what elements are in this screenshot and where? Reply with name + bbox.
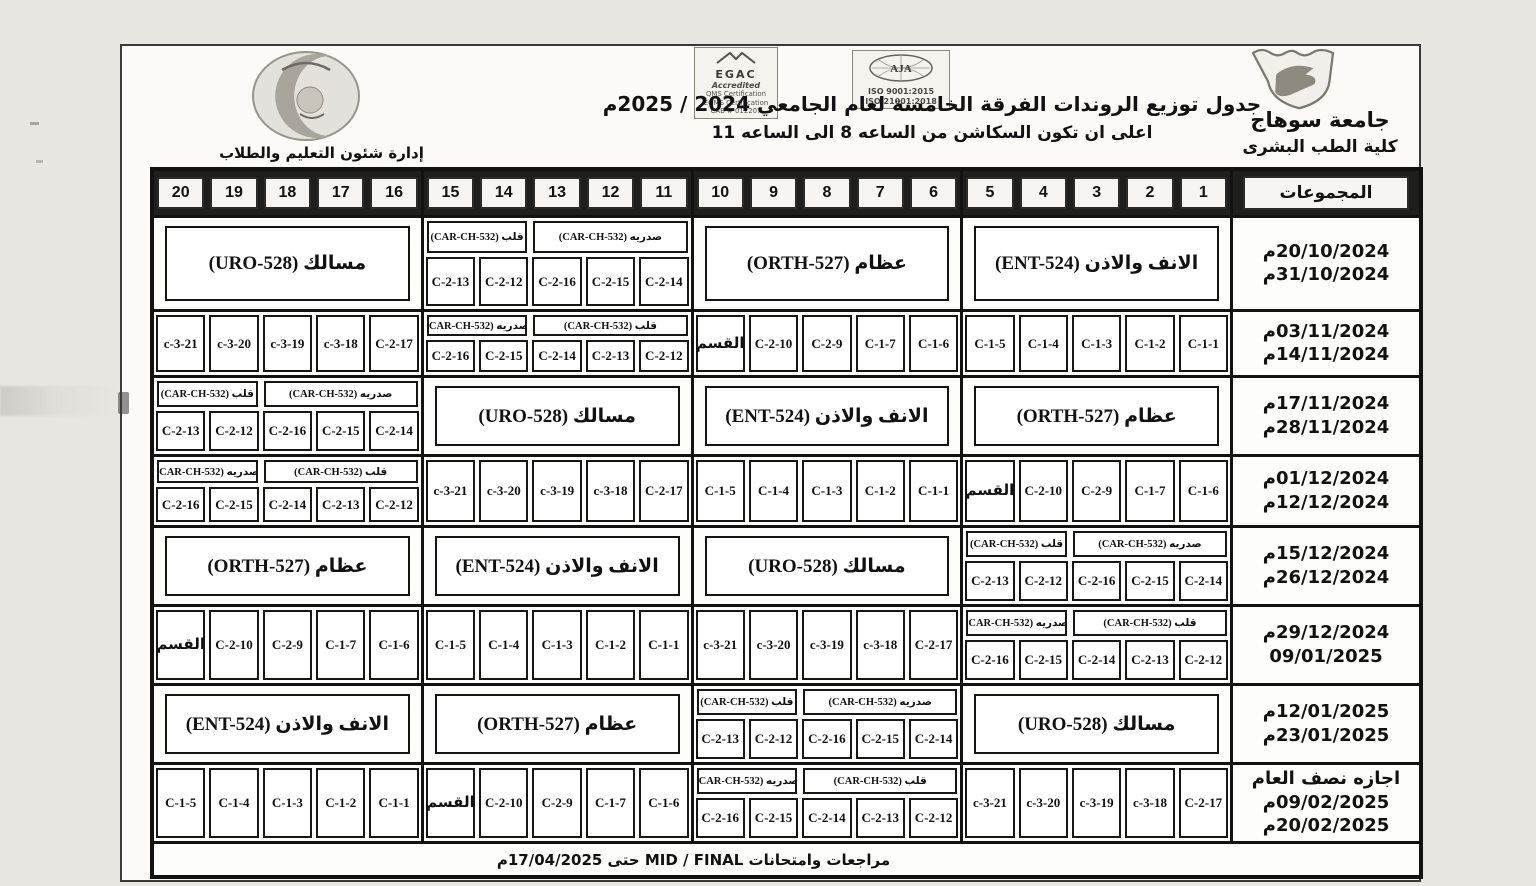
carch-cells: C-2-14C-2-15C-2-16C-2-12C-2-13 [424,254,691,309]
course-block: عظام (ORTH-527) [165,536,410,596]
page-subtitle: اعلى ان تكون السكاشن من الساعه 8 الى الس… [542,123,1322,143]
group-cell: C-1-2 [316,768,365,838]
group-cell: C-2-16 [426,340,475,372]
scan-artifact [118,392,129,414]
group-cell: C-2-12 [209,411,258,451]
group-cell: C-1-2 [856,460,905,522]
group-cell: C-1-3 [1072,315,1121,372]
group-cell: C-1-6 [1179,460,1228,522]
group-cell: C-2-13 [965,561,1014,601]
group-cell: C-2-14 [909,719,958,759]
group-cell: c-3-19 [1072,768,1121,838]
group-cell: C-2-12 [369,487,418,522]
group-cell: C-2-17 [1179,768,1228,838]
carch-cells: C-2-14C-2-15C-2-16C-2-12C-2-13 [694,716,961,762]
group-cell: C-2-14 [802,798,851,838]
group-cell: C-2-17 [909,610,958,680]
row-dates: 29/12/2024م09/01/2025 [1233,607,1419,683]
course-block: الانف والاذن (ENT-524) [165,694,410,754]
group-cell: C-2-10 [209,610,258,680]
egac-title: EGAC [697,68,775,81]
group-cell: c-3-19 [263,315,312,372]
university-name-block: جامعة سوهاج كلية الطب البشرى [1220,108,1420,157]
group-cell: C-1-2 [1125,315,1174,372]
course-block: الانف والاذن (ENT-524) [705,386,950,446]
column-header: 8 [803,177,850,209]
row-dates: اجازه نصف العام09/02/2025م20/02/2025م [1233,765,1419,841]
column-header: 10 [697,177,744,209]
group-cell: C-2-16 [1072,561,1121,601]
course-block: عظام (ORTH-527) [974,386,1219,446]
carch-headers: صدريه (CAR-CH-532)قلب (CAR-CH-532) [963,528,1230,558]
group-cell: C-2-16 [532,257,581,306]
date-line: 17/11/2024م [1263,393,1390,416]
group-cell: C-2-14 [369,411,418,451]
carch-header: صدريه (CAR-CH-532) [427,315,528,336]
column-header: 18 [264,177,311,209]
cells-group: C-2-17c-3-18c-3-19c-3-20c-3-21 [963,765,1233,841]
course-block: عظام (ORTH-527) [435,694,680,754]
carch-header: قلب (CAR-CH-532) [966,531,1067,557]
carch-header: صدريه (CAR-CH-532) [966,610,1067,636]
course-group: الانف والاذن (ENT-524) [424,528,694,604]
group-cell: C-1-6 [909,315,958,372]
course-group: مسالك (URO-528) [154,218,424,309]
course-group: الانف والاذن (ENT-524) [154,686,424,762]
column-header: 7 [857,177,904,209]
carch-header: صدريه (CAR-CH-532) [157,460,258,483]
column-header: 9 [750,177,797,209]
group-cell: c-3-20 [479,460,528,522]
table-header-row: المجموعات1234567891011121314151617181920 [154,171,1419,215]
group-cell: C-1-5 [696,460,745,522]
page-title: جدول توزيع الروندات الفرقة الخامسة لعام … [542,92,1322,116]
column-header: 11 [640,177,687,209]
group-cell: C-1-6 [639,768,688,838]
carch-headers: قلب (CAR-CH-532)صدريه (CAR-CH-532) [154,457,421,484]
course-group: عظام (ORTH-527) [424,686,694,762]
group-cell: c-3-20 [209,315,258,372]
group-cell: C-1-7 [586,768,635,838]
group-cell: C-1-5 [156,768,205,838]
cells-group: C-1-1C-1-2C-1-3C-1-4C-1-5 [694,457,964,525]
schedule-row: 29/12/2024م09/01/2025قلب (CAR-CH-532)صدر… [154,604,1419,683]
row-dates: 03/11/2024م14/11/2024م [1233,312,1419,375]
group-cell: C-1-7 [1125,460,1174,522]
column-header: 14 [480,177,527,209]
carch-headers: صدريه (CAR-CH-532)قلب (CAR-CH-532) [694,686,961,716]
carch-header: قلب (CAR-CH-532) [533,315,687,336]
egac-icon [715,51,757,64]
date-line: 20/02/2025م [1263,815,1390,838]
group-cell: C-1-1 [639,610,688,680]
course-block: مسالك (URO-528) [974,694,1219,754]
group-cell: c-3-18 [1125,768,1174,838]
group-cell: C-2-17 [369,315,418,372]
carch-header: صدريه (CAR-CH-532) [697,768,798,794]
column-header: 20 [157,177,204,209]
course-block: مسالك (URO-528) [705,536,950,596]
course-group: مسالك (URO-528) [963,686,1233,762]
row-dates: 15/12/2024م26/12/2024م [1233,528,1419,604]
column-header: 2 [1126,177,1173,209]
group-cell: C-2-13 [156,411,205,451]
column-header: 6 [910,177,957,209]
course-block: عظام (ORTH-527) [705,226,950,301]
group-cell: C-1-7 [316,610,365,680]
course-group: الانف والاذن (ENT-524) [694,378,964,454]
carch-group: صدريه (CAR-CH-532)قلب (CAR-CH-532)C-2-14… [963,528,1233,604]
column-header: 3 [1073,177,1120,209]
group-cell: C-2-10 [479,768,528,838]
column-header: 1 [1180,177,1227,209]
carch-group: قلب (CAR-CH-532)صدريه (CAR-CH-532)C-2-12… [963,607,1233,683]
carch-cells: C-2-12C-2-13C-2-14C-2-15C-2-16 [154,484,421,525]
footer-note: مراجعات وامتحانات MID / FINAL حتى 17/04/… [154,844,1233,875]
carch-cells: C-2-12C-2-13C-2-14C-2-15C-2-16 [424,337,691,375]
group-cell: c-3-20 [1019,768,1068,838]
group-cell: C-2-17 [639,460,688,522]
group-cell: c-3-21 [965,768,1014,838]
scan-artifact [30,122,39,125]
group-cell: c-3-19 [532,460,581,522]
course-group: عظام (ORTH-527) [154,528,424,604]
date-line: 15/12/2024م [1263,543,1390,566]
schedule-row: 03/11/2024م14/11/2024مC-1-1C-1-2C-1-3C-1… [154,309,1419,375]
row-dates: 20/10/2024م31/10/2024م [1233,218,1419,309]
header-group: 12345 [963,171,1233,215]
carch-header: قلب (CAR-CH-532) [157,381,258,407]
date-line: 29/12/2024م [1263,622,1390,645]
carch-group: قلب (CAR-CH-532)صدريه (CAR-CH-532)C-2-12… [154,457,424,525]
group-cell: C-2-12 [909,798,958,838]
carch-group: صدريه (CAR-CH-532)قلب (CAR-CH-532)C-2-14… [154,378,424,454]
footer-row: مراجعات وامتحانات MID / FINAL حتى 17/04/… [154,841,1419,875]
group-cell: C-2-13 [856,798,905,838]
column-header: 13 [533,177,580,209]
date-line: 09/02/2025م [1263,792,1390,815]
course-block: الانف والاذن (ENT-524) [435,536,680,596]
group-cell: القسم [156,610,205,680]
carch-group: صدريه (CAR-CH-532)قلب (CAR-CH-532)C-2-14… [424,218,694,309]
date-line: اجازه نصف العام [1252,768,1400,791]
cells-group: C-1-1C-1-2C-1-3C-1-4C-1-5 [963,312,1233,375]
group-cell: c-3-21 [696,610,745,680]
group-cell: C-2-14 [1179,561,1228,601]
group-cell: c-3-20 [749,610,798,680]
course-block: مسالك (URO-528) [165,226,410,301]
date-line: 12/12/2024م [1263,492,1390,515]
group-cell: C-2-9 [802,315,851,372]
group-cell: القسم [426,768,475,838]
scan-artifact [0,386,118,416]
group-cell: C-2-9 [263,610,312,680]
course-group: عظام (ORTH-527) [963,378,1233,454]
group-cell: C-2-15 [209,487,258,522]
group-cell: C-2-15 [479,340,528,372]
column-header: 4 [1020,177,1067,209]
carch-header: صدريه (CAR-CH-532) [803,689,957,715]
group-cell: C-2-14 [532,340,581,372]
row-dates: 01/12/2024م12/12/2024م [1233,457,1419,525]
date-line: 12/01/2025م [1263,701,1390,724]
group-cell: c-3-19 [802,610,851,680]
carch-header: قلب (CAR-CH-532) [264,460,418,483]
carch-header: صدريه (CAR-CH-532) [1073,531,1227,557]
course-block: مسالك (URO-528) [435,386,680,446]
carch-headers: صدريه (CAR-CH-532)قلب (CAR-CH-532) [154,378,421,408]
group-cell: C-2-12 [479,257,528,306]
header-group: 1617181920 [154,171,424,215]
carch-header: قلب (CAR-CH-532) [427,221,528,253]
group-cell: C-2-14 [263,487,312,522]
cells-group: C-1-6C-1-7C-2-9C-2-10القسم [424,765,694,841]
group-cell: C-2-12 [639,340,688,372]
group-cell: c-3-21 [426,460,475,522]
carch-header: صدريه (CAR-CH-532) [264,381,418,407]
university-name: جامعة سوهاج [1220,108,1420,132]
date-line: 20/10/2024م [1263,241,1390,264]
group-cell: C-2-10 [749,315,798,372]
group-cell: C-2-13 [1125,640,1174,680]
carch-header: صدريه (CAR-CH-532) [533,221,687,253]
cells-group: C-1-1C-1-2C-1-3C-1-4C-1-5 [154,765,424,841]
group-cell: C-2-15 [316,411,365,451]
group-cell: C-1-1 [369,768,418,838]
group-cell: C-2-15 [856,719,905,759]
carch-cells: C-2-14C-2-15C-2-16C-2-12C-2-13 [963,558,1230,604]
cells-group: C-2-17c-3-18c-3-19c-3-20c-3-21 [154,312,424,375]
header-group: 1112131415 [424,171,694,215]
group-cell: c-3-21 [156,315,205,372]
group-cell: C-2-16 [696,798,745,838]
document-title-block: جدول توزيع الروندات الفرقة الخامسة لعام … [542,92,1322,143]
cells-group: C-1-1C-1-2C-1-3C-1-4C-1-5 [424,607,694,683]
schedule-row: 17/11/2024م28/11/2024معظام (ORTH-527)الا… [154,375,1419,454]
carch-headers: قلب (CAR-CH-532)صدريه (CAR-CH-532) [963,607,1230,637]
group-cell: C-1-4 [1019,315,1068,372]
schedule-row: اجازه نصف العام09/02/2025م20/02/2025مC-2… [154,762,1419,841]
date-line: 03/11/2024م [1263,321,1390,344]
carch-headers: قلب (CAR-CH-532)صدريه (CAR-CH-532) [424,312,691,337]
course-group: مسالك (URO-528) [694,528,964,604]
cells-group: C-1-6C-1-7C-2-9C-2-10القسم [963,457,1233,525]
group-cell: القسم [696,315,745,372]
schedule-row: 20/10/2024م31/10/2024مالانف والاذن (ENT-… [154,215,1419,309]
faculty-name: كلية الطب البشرى [1220,137,1420,157]
group-cell: C-1-5 [965,315,1014,372]
group-cell: C-2-16 [965,640,1014,680]
carch-header: قلب (CAR-CH-532) [697,689,798,715]
group-cell: C-2-15 [1125,561,1174,601]
group-cell: C-2-15 [1019,640,1068,680]
carch-headers: قلب (CAR-CH-532)صدريه (CAR-CH-532) [694,765,961,795]
aja-globe-icon: AJA [868,53,934,83]
carch-cells: C-2-12C-2-13C-2-14C-2-15C-2-16 [694,795,961,841]
group-cell: C-2-15 [586,257,635,306]
date-line: 26/12/2024م [1263,567,1390,590]
cells-group: C-2-17c-3-18c-3-19c-3-20c-3-21 [424,457,694,525]
schedule-row: 01/12/2024م12/12/2024مC-1-6C-1-7C-2-9C-2… [154,454,1419,525]
group-cell: C-2-12 [1019,561,1068,601]
cells-group: C-1-6C-1-7C-2-9C-2-10القسم [694,312,964,375]
group-cell: c-3-18 [586,460,635,522]
carch-header: قلب (CAR-CH-532) [803,768,957,794]
date-line: 31/10/2024م [1263,264,1390,287]
cells-group: C-1-6C-1-7C-2-9C-2-10القسم [154,607,424,683]
carch-header: قلب (CAR-CH-532) [1073,610,1227,636]
group-cell: C-1-5 [426,610,475,680]
group-cell: C-1-3 [263,768,312,838]
group-cell: C-1-4 [209,768,258,838]
date-line: 28/11/2024م [1263,417,1390,440]
university-seal-logo [230,50,382,146]
column-header: 12 [587,177,634,209]
group-cell: C-2-14 [639,257,688,306]
row-dates: 17/11/2024م28/11/2024م [1233,378,1419,454]
group-cell: C-2-13 [696,719,745,759]
group-cell: C-2-16 [156,487,205,522]
column-header: 5 [966,177,1013,209]
date-line: 14/11/2024م [1263,344,1390,367]
row-dates: 12/01/2025م23/01/2025م [1233,686,1419,762]
carch-cells: C-2-14C-2-15C-2-16C-2-12C-2-13 [154,408,421,454]
cells-group: C-2-17c-3-18c-3-19c-3-20c-3-21 [694,607,964,683]
document-sheet: إدارة شئون التعليم والطلاب EGAC Accredit… [120,44,1421,882]
group-cell: C-2-9 [1072,460,1121,522]
header-group: 678910 [694,171,964,215]
group-cell: C-2-13 [426,257,475,306]
group-cell: C-2-16 [802,719,851,759]
schedule-table: المجموعات1234567891011121314151617181920… [150,167,1423,879]
course-block: الانف والاذن (ENT-524) [974,226,1219,301]
column-header: 15 [427,177,474,209]
group-cell: C-2-15 [749,798,798,838]
group-cell: القسم [965,460,1014,522]
svg-text:AJA: AJA [890,63,911,75]
group-cell: C-1-1 [909,460,958,522]
group-cell: C-1-4 [479,610,528,680]
scan-artifact [36,160,43,163]
schedule-row: 15/12/2024م26/12/2024مصدريه (CAR-CH-532)… [154,525,1419,604]
admin-label: إدارة شئون التعليم والطلاب [214,144,429,162]
faculty-shield-logo [1240,46,1346,114]
group-cell: C-2-16 [263,411,312,451]
column-header: 17 [317,177,364,209]
group-cell: C-2-13 [586,340,635,372]
date-line: 01/12/2024م [1263,468,1390,491]
group-cell: c-3-18 [316,315,365,372]
group-cell: C-2-13 [316,487,365,522]
group-cell: C-1-7 [856,315,905,372]
carch-headers: صدريه (CAR-CH-532)قلب (CAR-CH-532) [424,218,691,254]
column-header: 16 [370,177,417,209]
carch-group: صدريه (CAR-CH-532)قلب (CAR-CH-532)C-2-14… [694,686,964,762]
date-line: 09/01/2025 [1269,646,1382,669]
group-cell: C-1-3 [532,610,581,680]
group-cell: c-3-18 [856,610,905,680]
course-group: مسالك (URO-528) [424,378,694,454]
group-cell: C-1-2 [586,610,635,680]
schedule-row: 12/01/2025م23/01/2025ممسالك (URO-528)صدر… [154,683,1419,762]
group-cell: C-1-1 [1179,315,1228,372]
carch-cells: C-2-12C-2-13C-2-14C-2-15C-2-16 [963,637,1230,683]
group-cell: C-2-12 [1179,640,1228,680]
carch-group: قلب (CAR-CH-532)صدريه (CAR-CH-532)C-2-12… [694,765,964,841]
group-cell: C-2-12 [749,719,798,759]
group-cell: C-1-4 [749,460,798,522]
group-cell: C-1-3 [802,460,851,522]
groups-header: المجموعات [1243,176,1409,210]
date-line: 23/01/2025م [1263,725,1390,748]
carch-group: قلب (CAR-CH-532)صدريه (CAR-CH-532)C-2-12… [424,312,694,375]
footer-date-cell [1233,844,1419,875]
course-group: الانف والاذن (ENT-524) [963,218,1233,309]
column-header: 19 [210,177,257,209]
course-group: عظام (ORTH-527) [694,218,964,309]
group-cell: C-1-6 [369,610,418,680]
group-cell: C-2-14 [1072,640,1121,680]
group-cell: C-2-9 [532,768,581,838]
group-cell: C-2-10 [1019,460,1068,522]
